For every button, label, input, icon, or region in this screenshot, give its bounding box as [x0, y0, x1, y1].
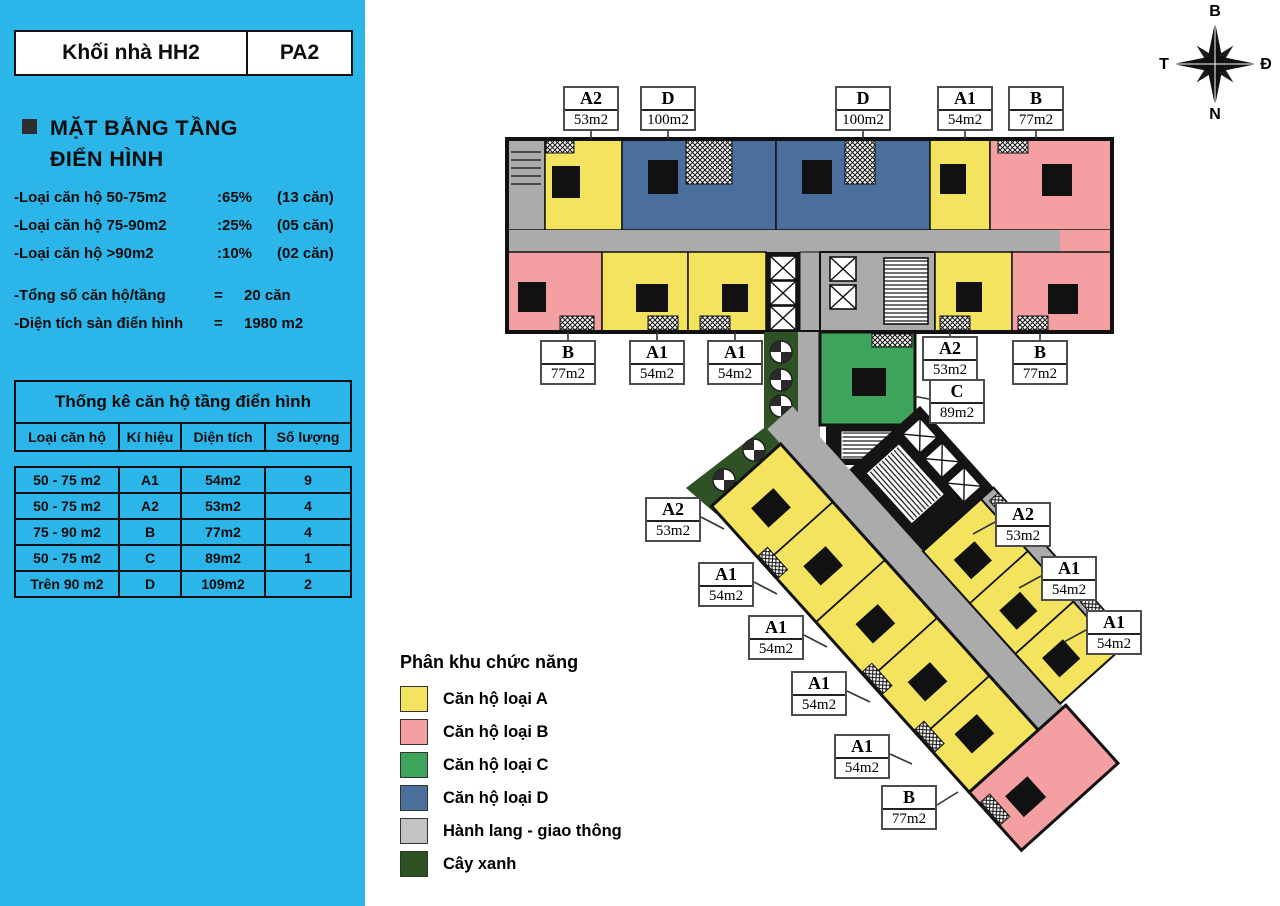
unit-area: 54m2	[1088, 635, 1140, 653]
unit-type: C	[931, 381, 983, 404]
legend-title: Phân khu chức năng	[400, 652, 622, 673]
table-row: 50 - 75 m2 C 89m2 1	[16, 546, 350, 572]
legend-item: Căn hộ loại D	[400, 785, 622, 811]
unit-label: A253m2	[563, 86, 619, 131]
unit-area: 53m2	[565, 111, 617, 129]
legend-label: Căn hộ loại B	[443, 723, 548, 742]
unit-label: A154m2	[834, 734, 890, 779]
unit-type: A1	[793, 673, 845, 696]
block-name: Khối nhà HH2	[16, 32, 248, 74]
col-header: Kí hiệu	[120, 424, 182, 450]
legend-item: Căn hộ loại B	[400, 719, 622, 745]
cell-code: A1	[120, 468, 182, 492]
totals-block: -Tổng số căn hộ/tầng = 20 căn -Diện tích…	[14, 282, 303, 338]
stat-label: -Loại căn hộ 75-90m2	[14, 212, 217, 240]
unit-area: 54m2	[709, 365, 761, 383]
unit-area: 53m2	[647, 522, 699, 540]
stat-label: -Loại căn hộ 50-75m2	[14, 184, 217, 212]
cell-code: C	[120, 546, 182, 570]
section-title-line1: MẶT BẰNG TẦNG	[50, 116, 238, 140]
unit-type: B	[1014, 342, 1066, 365]
unit-label: A253m2	[995, 502, 1051, 547]
unit-label: D100m2	[835, 86, 891, 131]
legend-swatch-b	[400, 719, 428, 745]
unit-type: A2	[997, 504, 1049, 527]
legend-swatch-corridor	[400, 818, 428, 844]
stats-block: -Loại căn hộ 50-75m2 :65% (13 căn) -Loại…	[14, 184, 334, 268]
unit-label: C89m2	[929, 379, 985, 424]
compass-south: N	[1209, 106, 1221, 123]
cell-type: 50 - 75 m2	[16, 494, 120, 518]
unit-label: A154m2	[1041, 556, 1097, 601]
compass-north: B	[1209, 3, 1221, 20]
unit-label: A154m2	[698, 562, 754, 607]
stat-pct: :25%	[217, 212, 277, 240]
unit-area: 53m2	[997, 527, 1049, 545]
stat-pct: :10%	[217, 240, 277, 268]
stat-count: (02 căn)	[277, 240, 334, 268]
stat-row: -Loại căn hộ 75-90m2 :25% (05 căn)	[14, 212, 334, 240]
stat-count: (13 căn)	[277, 184, 334, 212]
col-header: Diện tích	[182, 424, 266, 450]
unit-area: 54m2	[750, 640, 802, 658]
compass-rose: B Đ N T	[1155, 2, 1275, 124]
unit-area: 54m2	[700, 587, 752, 605]
total-label: -Diện tích sàn điển hình	[14, 310, 214, 338]
cell-area: 109m2	[182, 572, 266, 596]
top-wing	[507, 139, 1112, 332]
stat-count: (05 căn)	[277, 212, 334, 240]
unit-area: 54m2	[939, 111, 991, 129]
unit-type: A2	[924, 338, 976, 361]
unit-label: A253m2	[645, 497, 701, 542]
legend-label: Căn hộ loại C	[443, 756, 548, 775]
unit-label: A154m2	[1086, 610, 1142, 655]
stat-label: -Loại căn hộ >90m2	[14, 240, 217, 268]
cell-area: 54m2	[182, 468, 266, 492]
total-value: 20 căn	[244, 282, 291, 310]
cell-count: 1	[266, 546, 350, 570]
unit-label: B77m2	[881, 785, 937, 830]
stat-row: -Loại căn hộ >90m2 :10% (02 căn)	[14, 240, 334, 268]
table-body: 50 - 75 m2 A1 54m2 9 50 - 75 m2 A2 53m2 …	[14, 466, 352, 598]
legend-label: Cây xanh	[443, 855, 516, 874]
unit-area: 77m2	[1010, 111, 1062, 129]
unit-label: B77m2	[1012, 340, 1068, 385]
section-title: MẶT BẰNG TẦNG ĐIỂN HÌNH	[22, 113, 238, 174]
unit-type: D	[837, 88, 889, 111]
legend-item: Căn hộ loại C	[400, 752, 622, 778]
cell-area: 89m2	[182, 546, 266, 570]
col-header: Loại căn hộ	[16, 424, 120, 450]
unit-area: 54m2	[793, 696, 845, 714]
legend-swatch-a	[400, 686, 428, 712]
unit-label: D100m2	[640, 86, 696, 131]
unit-type: B	[1010, 88, 1062, 111]
total-row: -Tổng số căn hộ/tầng = 20 căn	[14, 282, 303, 310]
unit-type: A1	[750, 617, 802, 640]
unit-type: A2	[565, 88, 617, 111]
cell-count: 9	[266, 468, 350, 492]
unit-type: A1	[1088, 612, 1140, 635]
unit-type: A1	[836, 736, 888, 759]
legend-swatch-c	[400, 752, 428, 778]
compass-west: T	[1159, 56, 1169, 73]
cell-area: 53m2	[182, 494, 266, 518]
unit-area: 77m2	[542, 365, 594, 383]
unit-type: B	[883, 787, 935, 810]
cell-count: 4	[266, 494, 350, 518]
unit-area: 100m2	[837, 111, 889, 129]
unit-type: A2	[647, 499, 699, 522]
legend-item: Cây xanh	[400, 851, 622, 877]
unit-type: A1	[700, 564, 752, 587]
sidebar: Khối nhà HH2 PA2 MẶT BẰNG TẦNG ĐIỂN HÌNH…	[0, 0, 365, 906]
header-box: Khối nhà HH2 PA2	[14, 30, 353, 76]
col-header: Số lượng	[266, 424, 350, 450]
cell-code: D	[120, 572, 182, 596]
legend-label: Hành lang - giao thông	[443, 822, 622, 841]
table-row: 50 - 75 m2 A2 53m2 4	[16, 494, 350, 520]
unit-label: A154m2	[748, 615, 804, 660]
table-row: 50 - 75 m2 A1 54m2 9	[16, 468, 350, 494]
cell-type: Trên 90 m2	[16, 572, 120, 596]
unit-type: D	[642, 88, 694, 111]
unit-label: A154m2	[791, 671, 847, 716]
unit-type: B	[542, 342, 594, 365]
total-equals: =	[214, 310, 244, 338]
table-row: 75 - 90 m2 B 77m2 4	[16, 520, 350, 546]
legend-swatch-green	[400, 851, 428, 877]
cell-count: 2	[266, 572, 350, 596]
unit-type: A1	[709, 342, 761, 365]
compass-east: Đ	[1260, 56, 1272, 73]
stat-row: -Loại căn hộ 50-75m2 :65% (13 căn)	[14, 184, 334, 212]
total-row: -Diện tích sàn điển hình = 1980 m2	[14, 310, 303, 338]
cell-type: 75 - 90 m2	[16, 520, 120, 544]
unit-label: A154m2	[629, 340, 685, 385]
unit-type: A1	[939, 88, 991, 111]
unit-label: B77m2	[1008, 86, 1064, 131]
page: A253m2 D100m2 D100m2 A154m2 B77m2 B77m2 …	[0, 0, 1280, 906]
cell-count: 4	[266, 520, 350, 544]
unit-area: 54m2	[631, 365, 683, 383]
unit-label: B77m2	[540, 340, 596, 385]
unit-area: 77m2	[1014, 365, 1066, 383]
legend-label: Căn hộ loại A	[443, 690, 548, 709]
unit-label: A253m2	[922, 336, 978, 381]
unit-label: A154m2	[707, 340, 763, 385]
unit-area: 54m2	[836, 759, 888, 777]
unit-area: 77m2	[883, 810, 935, 828]
legend-item: Căn hộ loại A	[400, 686, 622, 712]
legend: Phân khu chức năng Căn hộ loại A Căn hộ …	[400, 652, 622, 884]
bullet-square-icon	[22, 119, 37, 134]
table-title: Thống kê căn hộ tầng điển hình	[14, 380, 352, 424]
cell-type: 50 - 75 m2	[16, 546, 120, 570]
unit-label: A154m2	[937, 86, 993, 131]
total-value: 1980 m2	[244, 310, 303, 338]
unit-area: 100m2	[642, 111, 694, 129]
table-header: Loại căn hộ Kí hiệu Diện tích Số lượng	[14, 422, 352, 452]
stairs	[884, 258, 928, 324]
plan-code: PA2	[248, 32, 351, 74]
unit-type: A1	[631, 342, 683, 365]
unit-type: A1	[1043, 558, 1095, 581]
table-row: Trên 90 m2 D 109m2 2	[16, 572, 350, 596]
cell-area: 77m2	[182, 520, 266, 544]
section-title-line2: ĐIỂN HÌNH	[50, 147, 164, 171]
cell-code: A2	[120, 494, 182, 518]
total-equals: =	[214, 282, 244, 310]
unit-area: 54m2	[1043, 581, 1095, 599]
unit-area: 53m2	[924, 361, 976, 379]
stat-pct: :65%	[217, 184, 277, 212]
total-label: -Tổng số căn hộ/tầng	[14, 282, 214, 310]
legend-item: Hành lang - giao thông	[400, 818, 622, 844]
cell-code: B	[120, 520, 182, 544]
cell-type: 50 - 75 m2	[16, 468, 120, 492]
unit-area: 89m2	[931, 404, 983, 422]
legend-swatch-d	[400, 785, 428, 811]
legend-label: Căn hộ loại D	[443, 789, 548, 808]
